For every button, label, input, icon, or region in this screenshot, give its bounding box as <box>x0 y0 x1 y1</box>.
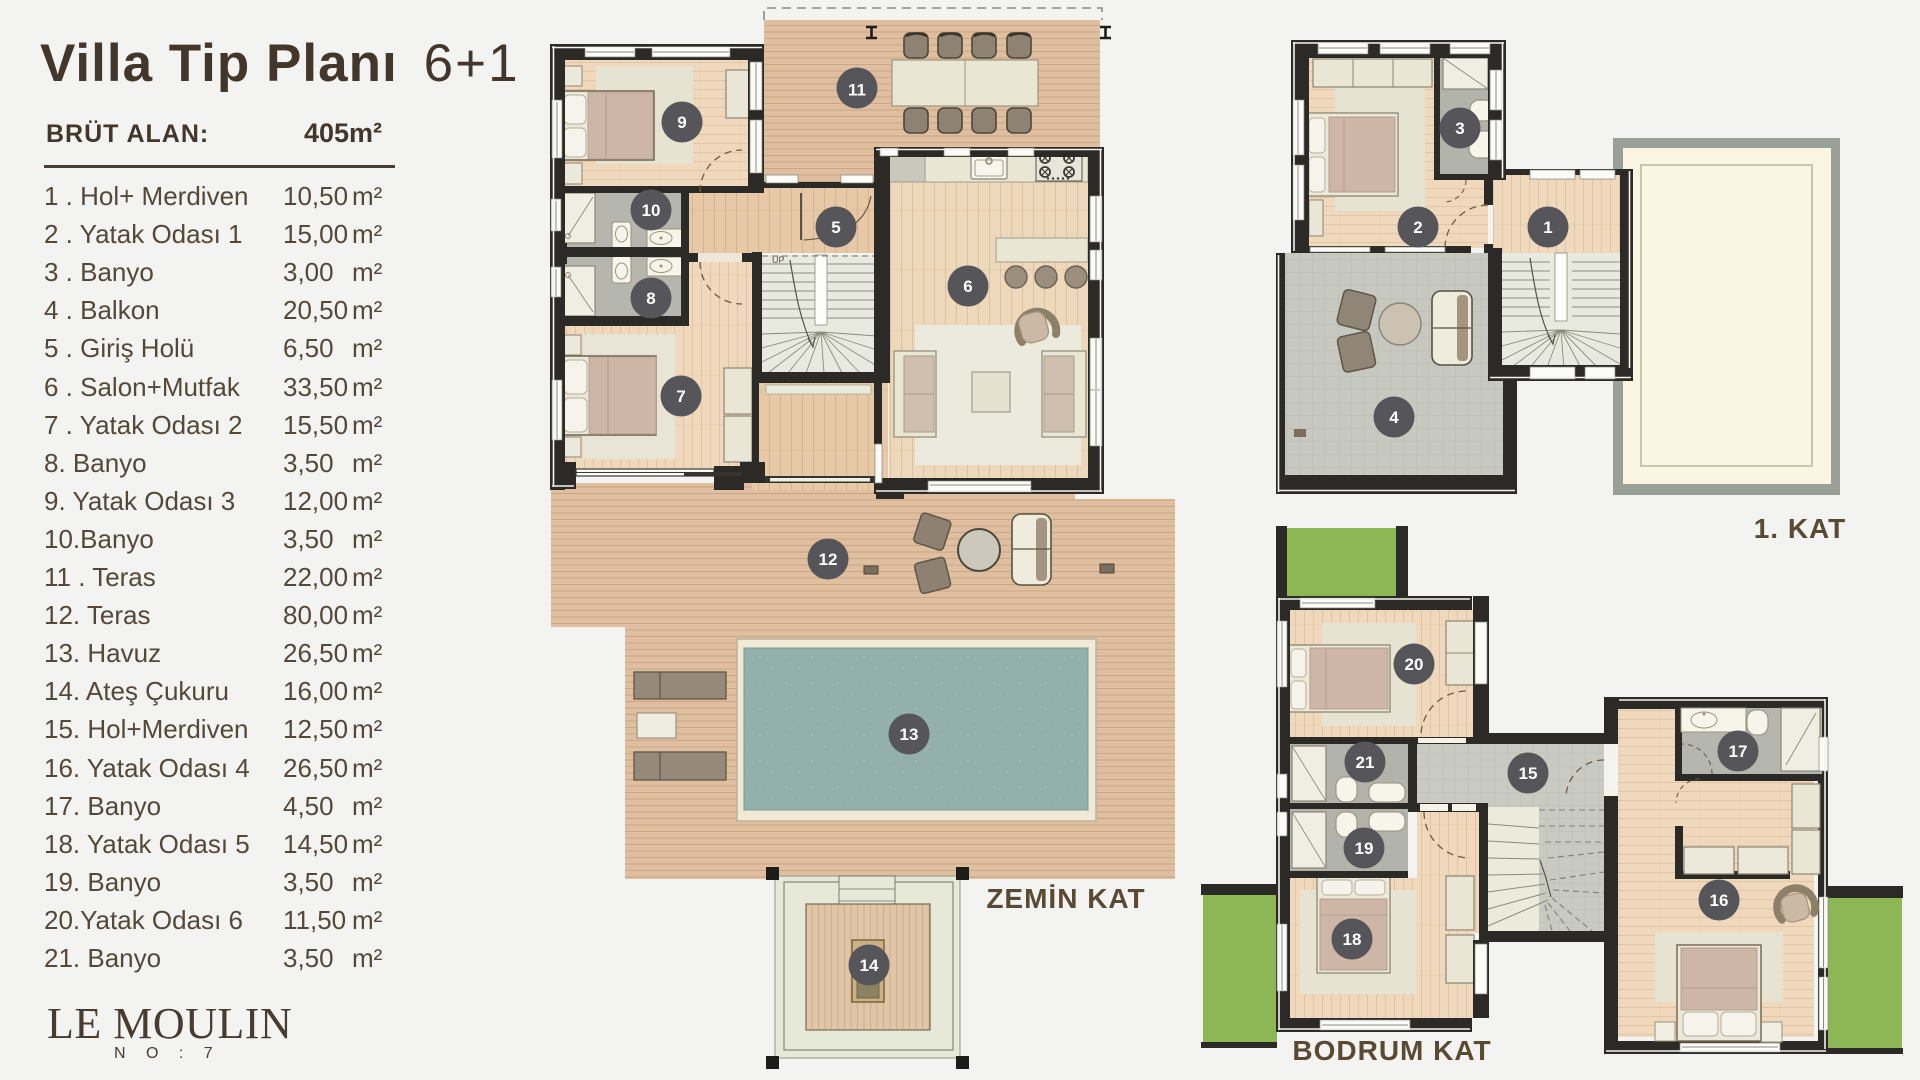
svg-text:18: 18 <box>1343 930 1362 949</box>
svg-text:9: 9 <box>677 113 686 132</box>
svg-text:20: 20 <box>1405 655 1424 674</box>
svg-text:11: 11 <box>848 81 866 100</box>
svg-text:1: 1 <box>1543 218 1552 237</box>
svg-text:3: 3 <box>1455 119 1464 138</box>
svg-text:17: 17 <box>1729 742 1748 761</box>
svg-text:8: 8 <box>646 289 655 308</box>
svg-text:1. KAT: 1. KAT <box>1754 513 1847 544</box>
svg-text:19: 19 <box>1355 839 1374 858</box>
svg-text:14: 14 <box>860 956 879 975</box>
svg-text:12: 12 <box>819 550 838 569</box>
svg-text:BODRUM KAT: BODRUM KAT <box>1292 1035 1491 1066</box>
svg-text:16: 16 <box>1710 891 1729 910</box>
svg-text:2: 2 <box>1413 218 1422 237</box>
svg-text:10: 10 <box>642 201 661 220</box>
svg-text:5: 5 <box>831 218 840 237</box>
svg-text:4: 4 <box>1389 408 1399 427</box>
svg-text:ZEMİN KAT: ZEMİN KAT <box>986 883 1145 914</box>
svg-text:6: 6 <box>963 277 972 296</box>
svg-text:15: 15 <box>1519 764 1538 783</box>
svg-text:21: 21 <box>1356 753 1375 772</box>
svg-text:7: 7 <box>676 387 685 406</box>
svg-text:13: 13 <box>900 725 919 744</box>
